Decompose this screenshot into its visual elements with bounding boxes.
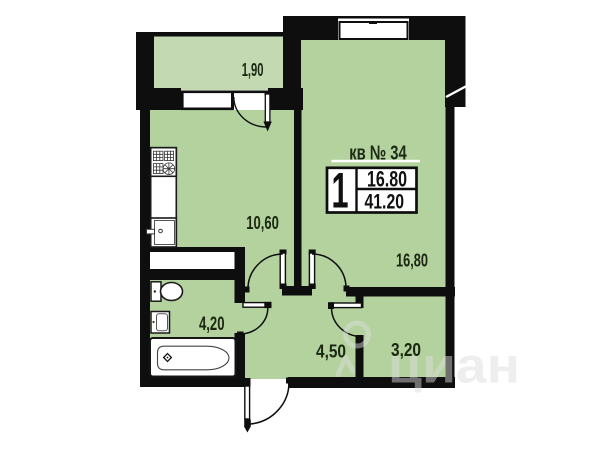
svg-text:4,20: 4,20 (199, 313, 225, 335)
svg-text:4,50: 4,50 (316, 340, 346, 361)
svg-text:16.80: 16.80 (367, 167, 407, 192)
svg-text:10,60: 10,60 (246, 212, 278, 233)
svg-text:1,90: 1,90 (242, 59, 264, 80)
svg-text:41.20: 41.20 (365, 191, 405, 214)
svg-text:16,80: 16,80 (396, 250, 428, 271)
svg-text:1: 1 (332, 163, 349, 219)
svg-text:циан: циан (388, 338, 520, 394)
